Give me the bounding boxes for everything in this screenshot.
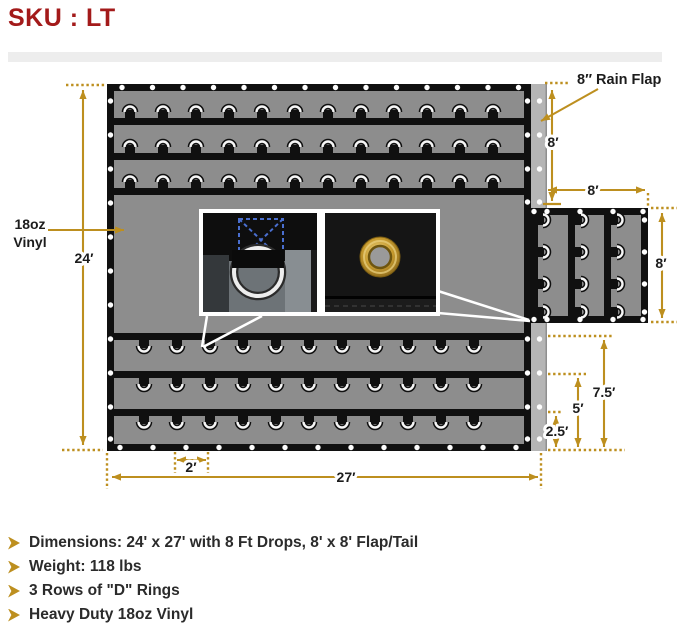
rain-flap-label: 8″ Rain Flap <box>577 72 661 88</box>
spec-text: Heavy Duty 18oz Vinyl <box>29 606 193 624</box>
chevron-bullet-icon <box>8 537 20 550</box>
grommet-spacing-label: 2′ <box>185 459 197 475</box>
drop-height-label: 8′ <box>547 134 559 150</box>
spec-item: Weight: 118 lbs <box>8 558 418 576</box>
height-dim-label: 24′ <box>75 250 95 266</box>
spec-list: Dimensions: 24' x 27' with 8 Ft Drops, 8… <box>8 534 418 624</box>
tarp-diagram: 18oz Vinyl 8″ Rain Flap 24′ 27′ 2′ 8′ 8′… <box>0 0 679 510</box>
spec-item: Dimensions: 24' x 27' with 8 Ft Drops, 8… <box>8 534 418 552</box>
spec-text: Weight: 118 lbs <box>29 558 142 576</box>
spec-text: Dimensions: 24' x 27' with 8 Ft Drops, 8… <box>29 534 418 552</box>
chevron-bullet-icon <box>8 561 20 574</box>
grommet-detail-photo <box>325 213 436 312</box>
spec-item: 3 Rows of "D" Rings <box>8 582 418 600</box>
width-dim-label: 27′ <box>337 469 357 485</box>
dring-detail-photo <box>203 213 321 312</box>
flap-height-label: 8′ <box>655 255 667 271</box>
chevron-bullet-icon <box>8 585 20 598</box>
material-label-line2: Vinyl <box>13 234 46 250</box>
ring-row1-label: 2.5′ <box>546 423 569 439</box>
chevron-bullet-icon <box>8 609 20 622</box>
ring-row2-label: 5′ <box>572 400 584 416</box>
material-label-line1: 18oz <box>14 216 45 232</box>
flap-width-label: 8′ <box>587 182 599 198</box>
spec-item: Heavy Duty 18oz Vinyl <box>8 606 418 624</box>
tail-flap-graphic <box>531 208 648 323</box>
spec-text: 3 Rows of "D" Rings <box>29 582 180 600</box>
brass-grommet <box>360 237 400 277</box>
detail-photos <box>199 209 440 316</box>
ring-row3-label: 7.5′ <box>593 384 616 400</box>
